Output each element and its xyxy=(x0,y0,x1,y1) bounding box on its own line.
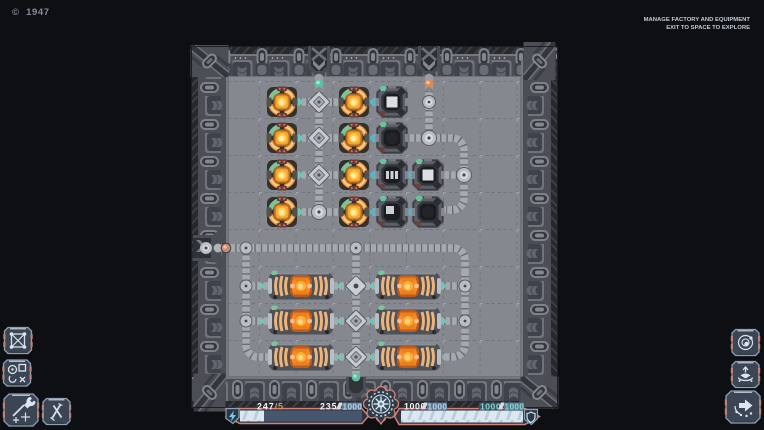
svg-text:EXIT TO SPACE TO EXPLORE: EXIT TO SPACE TO EXPLORE xyxy=(666,25,750,31)
svg-text:© 1947: © 1947 xyxy=(12,7,50,18)
svg-text:MANAGE FACTORY AND EQUIPMENT: MANAGE FACTORY AND EQUIPMENT xyxy=(644,17,751,23)
svg-text:1000: 1000 xyxy=(428,402,448,411)
svg-text:247/5: 247/5 xyxy=(257,402,284,412)
svg-text:1000: 1000 xyxy=(480,401,501,411)
svg-text:235: 235 xyxy=(320,402,337,412)
svg-text:1000: 1000 xyxy=(505,402,525,411)
svg-text:1000: 1000 xyxy=(343,402,363,411)
